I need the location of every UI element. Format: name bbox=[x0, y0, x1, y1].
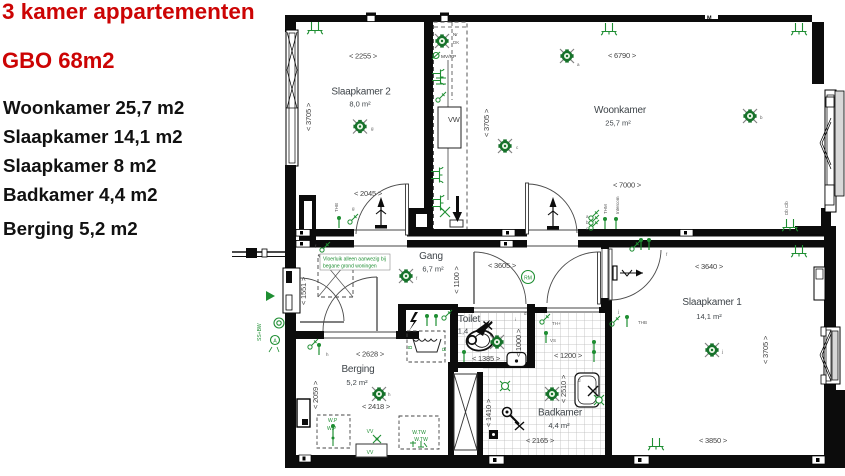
svg-text:< 6790 >: < 6790 > bbox=[608, 51, 637, 60]
svg-text:< 2255 >: < 2255 > bbox=[349, 52, 378, 61]
svg-text:< 2045 >: < 2045 > bbox=[354, 189, 383, 198]
svg-text:RM: RM bbox=[524, 276, 532, 282]
svg-text:25,7 m²: 25,7 m² bbox=[605, 119, 631, 128]
svg-text:< 1410 >: < 1410 > bbox=[484, 398, 493, 427]
svg-text:< 1385 >: < 1385 > bbox=[472, 354, 501, 363]
svg-text:M: M bbox=[707, 16, 712, 22]
svg-text:< 3705 >: < 3705 > bbox=[304, 102, 313, 131]
svg-text:< 1200 >: < 1200 > bbox=[554, 351, 583, 360]
svg-text:4,4 m²: 4,4 m² bbox=[548, 421, 570, 430]
svg-text:Vloerluik alleen aanwezig bij: Vloerluik alleen aanwezig bij bbox=[323, 257, 386, 263]
svg-text:Gang: Gang bbox=[419, 251, 443, 262]
svg-text:R: R bbox=[442, 347, 448, 351]
svg-text:Badkamer 4,4 m2: Badkamer 4,4 m2 bbox=[3, 184, 158, 205]
svg-text:< 3605 >: < 3605 > bbox=[488, 261, 517, 270]
svg-text:VV: VV bbox=[367, 429, 374, 435]
svg-text:< 3640 >: < 3640 > bbox=[695, 262, 724, 271]
svg-text:j: j bbox=[721, 349, 723, 354]
svg-text:< 7000 >: < 7000 > bbox=[613, 181, 642, 190]
svg-text:Intercom: Intercom bbox=[615, 196, 620, 214]
svg-text:< 1000 >: < 1000 > bbox=[514, 328, 523, 357]
svg-text:GBO 68m2: GBO 68m2 bbox=[2, 48, 115, 73]
svg-text:THB: THB bbox=[334, 203, 339, 212]
svg-text:< 3705 >: < 3705 > bbox=[482, 108, 491, 137]
svg-text:j: j bbox=[617, 309, 619, 314]
svg-text:3 kamer appartementen: 3 kamer appartementen bbox=[2, 0, 255, 24]
svg-text:Berging: Berging bbox=[341, 364, 374, 375]
svg-text:< 1100 >: < 1100 > bbox=[452, 265, 461, 293]
svg-text:SS+BW: SS+BW bbox=[257, 323, 263, 341]
svg-text:< 2165 >: < 2165 > bbox=[526, 436, 555, 445]
svg-text:W.P: W.P bbox=[327, 426, 337, 432]
svg-text:6,7 m²: 6,7 m² bbox=[422, 265, 444, 274]
svg-text:< 3850 >: < 3850 > bbox=[699, 436, 728, 445]
svg-text:VS: VS bbox=[550, 338, 556, 343]
svg-text:< 2418 >: < 2418 > bbox=[362, 402, 391, 411]
svg-text:< 1551 >: < 1551 > bbox=[299, 276, 308, 305]
svg-text:Badkamer: Badkamer bbox=[538, 408, 583, 419]
svg-text:TH+: TH+ bbox=[552, 321, 561, 326]
svg-text:5,2 m²: 5,2 m² bbox=[346, 378, 368, 387]
svg-text:Woonkamer: Woonkamer bbox=[594, 105, 647, 116]
svg-text:< 2059 >: < 2059 > bbox=[311, 380, 320, 409]
svg-text:begane grond woningen: begane grond woningen bbox=[323, 264, 377, 270]
svg-text:THM: THM bbox=[603, 204, 608, 214]
svg-text:Berging 5,2 m2: Berging 5,2 m2 bbox=[3, 218, 138, 239]
svg-text:W.TW: W.TW bbox=[412, 430, 426, 436]
svg-text:Toilet: Toilet bbox=[458, 314, 481, 325]
svg-text:VV: VV bbox=[367, 450, 374, 456]
svg-text:DK: DK bbox=[453, 40, 459, 45]
svg-text:MV/RP: MV/RP bbox=[441, 54, 456, 60]
svg-text:Woonkamer 25,7 m2: Woonkamer 25,7 m2 bbox=[3, 97, 184, 118]
svg-text:8,0 m²: 8,0 m² bbox=[349, 100, 371, 109]
svg-text:Db Clb: Db Clb bbox=[784, 201, 789, 215]
svg-text:Slaapkamer 8 m2: Slaapkamer 8 m2 bbox=[3, 155, 156, 176]
svg-text:W.P: W.P bbox=[328, 418, 338, 424]
svg-text:14,1 m²: 14,1 m² bbox=[696, 312, 722, 321]
svg-text:VW: VW bbox=[448, 115, 461, 124]
svg-text:< 3705 >: < 3705 > bbox=[761, 335, 770, 364]
svg-text:Slaapkamer 1: Slaapkamer 1 bbox=[682, 297, 742, 308]
svg-text:< 2628 >: < 2628 > bbox=[356, 350, 385, 359]
svg-text:< 2510 >: < 2510 > bbox=[559, 374, 568, 403]
svg-text:Nr: Nr bbox=[453, 32, 458, 37]
svg-text:i: i bbox=[515, 317, 516, 322]
svg-text:Slaapkamer 2: Slaapkamer 2 bbox=[331, 87, 391, 98]
svg-text:THB: THB bbox=[638, 320, 647, 325]
svg-text:Slaapkamer 14,1 m2: Slaapkamer 14,1 m2 bbox=[3, 126, 183, 147]
svg-text:1,4: 1,4 bbox=[458, 327, 468, 336]
